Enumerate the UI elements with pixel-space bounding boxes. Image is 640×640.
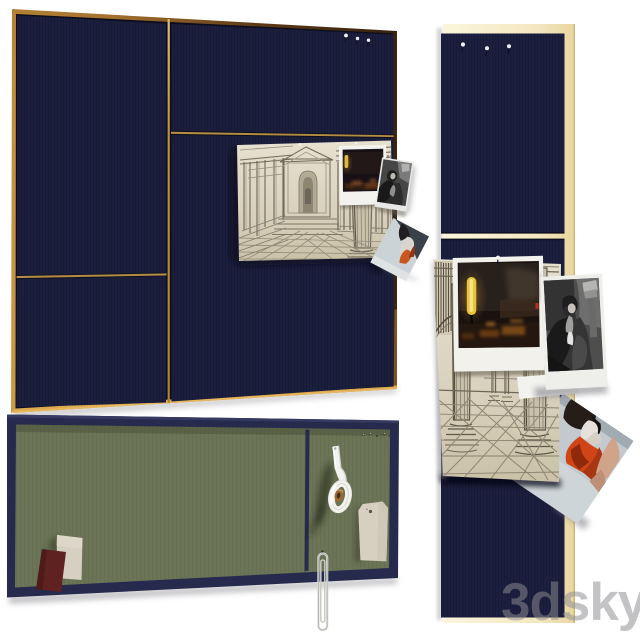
svg-text:3dsky: 3dsky — [501, 573, 640, 632]
